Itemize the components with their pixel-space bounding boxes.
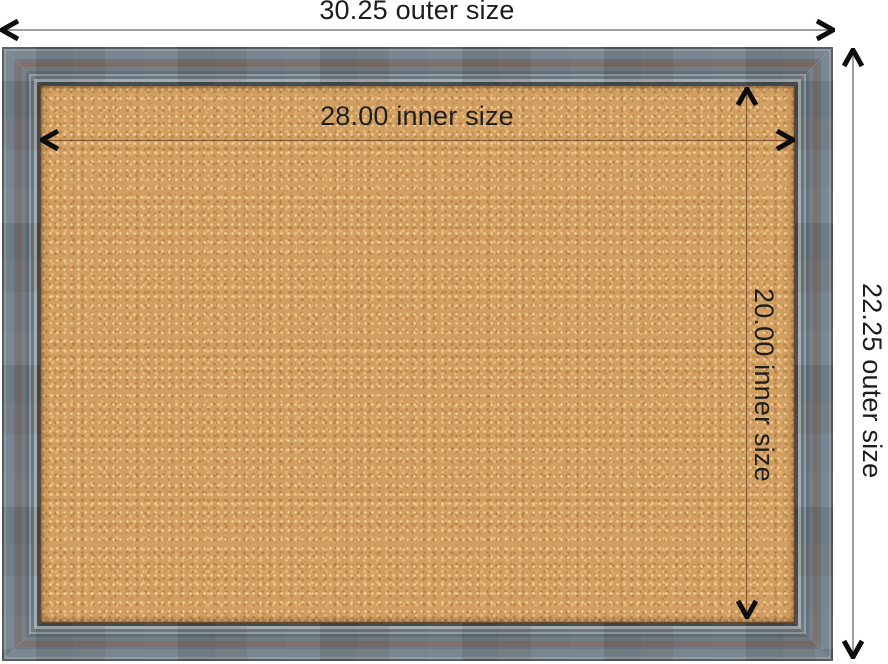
frame-right bbox=[795, 47, 833, 661]
inner-width-label: 28.00 inner size bbox=[117, 103, 717, 130]
outer-width-label: 30.25 outer size bbox=[117, 0, 717, 24]
frame-top bbox=[2, 47, 833, 85]
product-dimension-image: 30.25 outer size 22.25 outer size 28.00 … bbox=[0, 0, 888, 664]
inner-height-arrow-down-icon bbox=[736, 599, 758, 619]
outer-height-arrow-up-icon bbox=[842, 48, 864, 68]
frame-bottom bbox=[2, 623, 833, 661]
inner-height-arrow-up-icon bbox=[736, 87, 758, 107]
outer-width-arrow-right-icon bbox=[815, 19, 835, 41]
inner-width-line bbox=[43, 140, 793, 141]
inner-width-arrow-left-icon bbox=[40, 129, 60, 151]
outer-height-line bbox=[852, 50, 854, 657]
inner-height-line bbox=[746, 89, 747, 618]
outer-width-line bbox=[3, 29, 833, 31]
outer-height-arrow-down-icon bbox=[842, 639, 864, 659]
outer-width-arrow-left-icon bbox=[0, 19, 20, 41]
cork-surface bbox=[40, 85, 795, 623]
inner-height-label: 20.00 inner size bbox=[750, 288, 777, 482]
frame-left bbox=[2, 47, 40, 661]
outer-height-label: 22.25 outer size bbox=[858, 283, 885, 478]
inner-width-arrow-right-icon bbox=[775, 129, 795, 151]
